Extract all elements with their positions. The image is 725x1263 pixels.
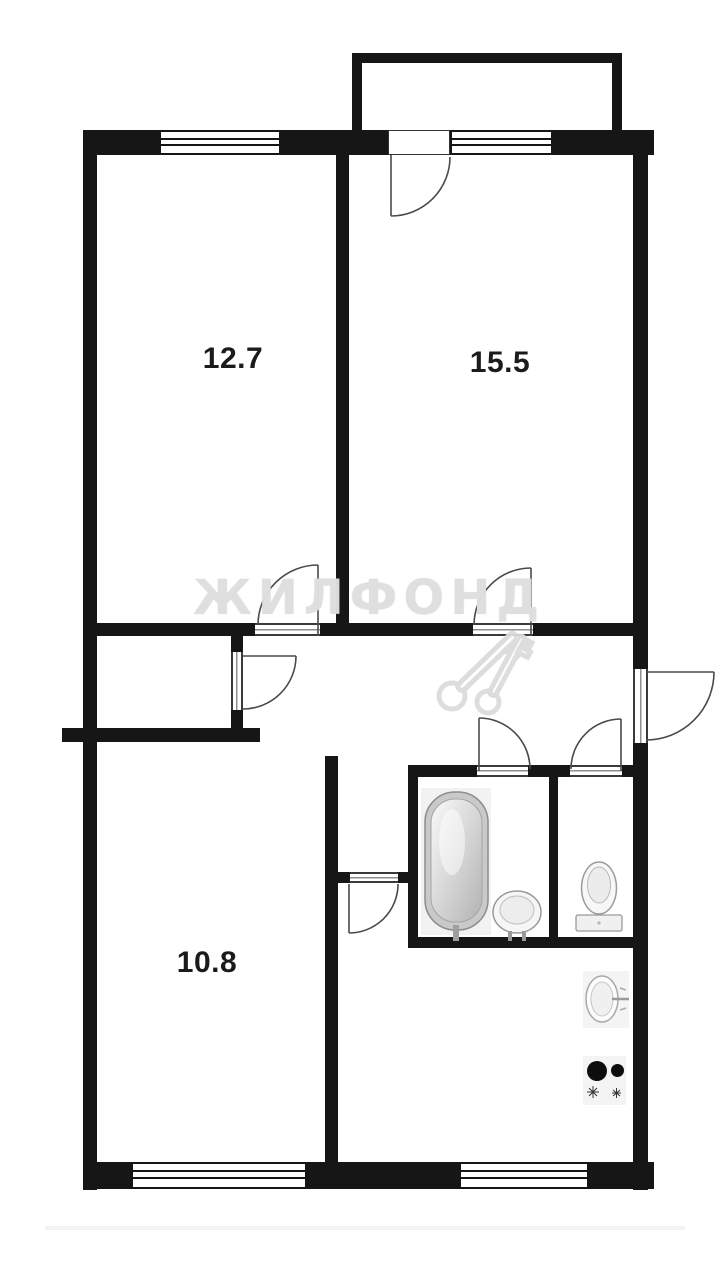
kitchen-sink-icon <box>583 971 629 1028</box>
closet-door-arc <box>243 656 296 709</box>
entrance-door-arc <box>646 672 714 740</box>
kitchen-door-arc <box>349 884 398 933</box>
floor-plan: 12.7 15.5 10.8 ЖИЛФОНД <box>0 0 725 1263</box>
room-area-label-155: 15.5 <box>440 346 560 380</box>
toilet-icon <box>576 862 622 931</box>
bathtub-icon <box>421 788 491 941</box>
room-area-label-127: 12.7 <box>173 342 293 376</box>
bathroom-door-arc <box>479 718 530 771</box>
watermark-keys-icon <box>428 598 553 723</box>
stove-icon <box>583 1056 626 1105</box>
bathroom-sink-icon <box>493 891 541 941</box>
doors-and-fixtures-layer <box>0 0 725 1263</box>
wc-door-arc <box>571 719 621 771</box>
balcony-door-arc <box>391 155 450 216</box>
room-area-label-108: 10.8 <box>147 946 267 980</box>
